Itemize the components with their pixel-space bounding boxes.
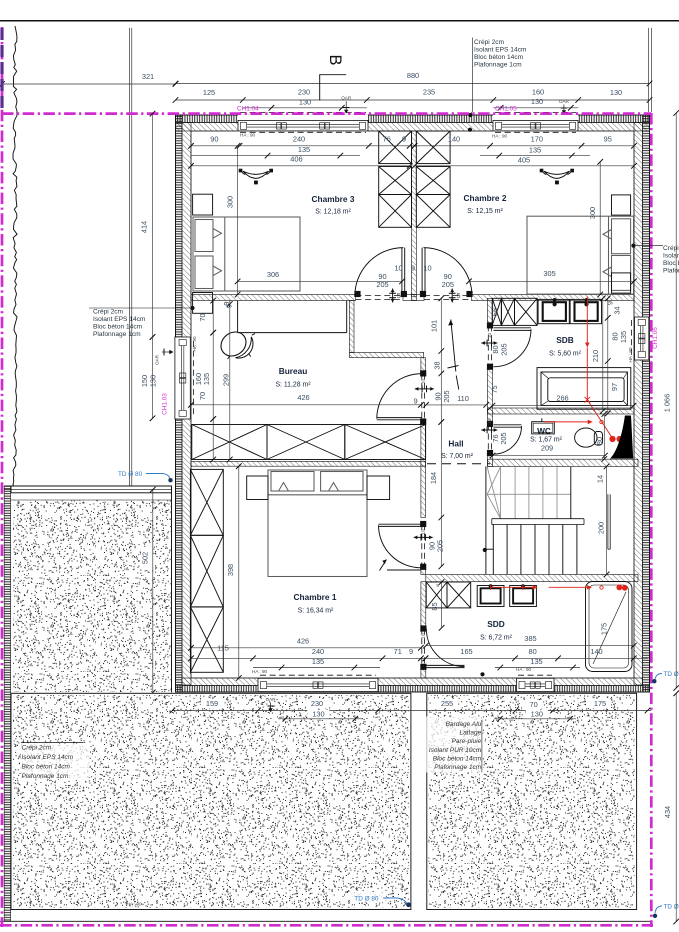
svg-text:434: 434 <box>663 806 672 818</box>
svg-text:Plafonnage 1cm: Plafonnage 1cm <box>93 331 141 338</box>
svg-text:HA : 90: HA : 90 <box>127 902 143 907</box>
svg-text:130: 130 <box>312 710 324 719</box>
svg-text:Lattage: Lattage <box>460 730 482 737</box>
svg-text:Bardage Alu: Bardage Alu <box>446 721 482 728</box>
svg-text:75: 75 <box>490 385 499 393</box>
svg-text:CH1.03: CH1.03 <box>162 393 169 415</box>
svg-text:OAR: OAR <box>155 354 160 365</box>
svg-text:B: B <box>326 54 344 65</box>
svg-text:240: 240 <box>312 647 324 656</box>
svg-text:160: 160 <box>532 88 544 97</box>
svg-text:165: 165 <box>460 647 472 656</box>
svg-text:Pare-pluie: Pare-pluie <box>452 738 482 745</box>
svg-text:385: 385 <box>524 634 536 643</box>
svg-text:56: 56 <box>491 308 500 316</box>
svg-text:426: 426 <box>297 393 309 402</box>
svg-text:S: 6,72 m²: S: 6,72 m² <box>480 635 512 642</box>
svg-text:10: 10 <box>487 333 492 339</box>
svg-text:414: 414 <box>140 221 149 233</box>
svg-text:HA : 90: HA : 90 <box>628 347 633 363</box>
svg-text:135: 135 <box>312 657 324 666</box>
svg-text:97: 97 <box>610 383 619 391</box>
svg-text:80: 80 <box>595 437 604 445</box>
svg-text:9: 9 <box>409 647 413 656</box>
svg-text:135: 135 <box>202 373 211 385</box>
svg-text:184: 184 <box>429 472 438 484</box>
svg-text:TD Ø 80: TD Ø 80 <box>118 471 143 478</box>
svg-text:115: 115 <box>217 643 229 652</box>
svg-text:235: 235 <box>423 88 435 97</box>
svg-text:9: 9 <box>411 264 415 273</box>
svg-text:Bloc béton 14cm: Bloc béton 14cm <box>93 324 143 331</box>
svg-text:Hall: Hall <box>448 439 463 449</box>
svg-text:300: 300 <box>588 207 597 219</box>
svg-text:502: 502 <box>141 552 150 564</box>
svg-text:205: 205 <box>499 432 508 444</box>
svg-text:Isolant EPS 14cm: Isolant EPS 14cm <box>474 47 527 54</box>
svg-text:266: 266 <box>556 394 568 403</box>
svg-text:135: 135 <box>619 331 628 343</box>
svg-text:Crépi 2cm: Crépi 2cm <box>22 745 52 752</box>
svg-text:70: 70 <box>529 700 537 709</box>
svg-text:10: 10 <box>421 633 426 639</box>
svg-text:880: 880 <box>407 71 419 80</box>
svg-text:175: 175 <box>600 623 609 635</box>
svg-text:135: 135 <box>529 146 541 155</box>
svg-text:TD Ø 80: TD Ø 80 <box>354 896 379 903</box>
svg-text:135: 135 <box>530 657 542 666</box>
svg-text:135: 135 <box>298 145 310 154</box>
svg-text:130: 130 <box>299 98 311 107</box>
svg-text:110: 110 <box>457 394 469 403</box>
svg-text:S: 7,00 m²: S: 7,00 m² <box>441 453 473 460</box>
svg-text:Isolant EPS 14cm: Isolant EPS 14cm <box>22 754 74 761</box>
svg-text:Bureau: Bureau <box>279 366 308 376</box>
svg-text:90: 90 <box>210 134 218 143</box>
svg-text:Plafon: Plafon <box>663 268 679 275</box>
svg-text:CH1.05: CH1.05 <box>495 106 517 113</box>
svg-text:34: 34 <box>612 306 621 314</box>
svg-text:426: 426 <box>297 636 309 645</box>
svg-text:Isolant: Isolant <box>663 253 679 260</box>
svg-text:CH1.04: CH1.04 <box>237 106 259 113</box>
svg-text:S: 1,67 m²: S: 1,67 m² <box>530 437 562 444</box>
svg-text:130: 130 <box>148 375 157 387</box>
svg-text:10: 10 <box>394 264 402 273</box>
svg-text:230: 230 <box>311 699 323 708</box>
svg-text:230: 230 <box>298 88 310 97</box>
svg-text:175: 175 <box>594 699 606 708</box>
svg-text:130: 130 <box>531 710 543 719</box>
svg-text:255: 255 <box>441 699 453 708</box>
svg-text:CH1.06: CH1.06 <box>652 327 659 349</box>
svg-text:9: 9 <box>402 134 406 143</box>
svg-text:HA : 90: HA : 90 <box>240 133 256 138</box>
svg-text:125: 125 <box>203 88 215 97</box>
svg-text:209: 209 <box>541 444 553 453</box>
svg-text:140: 140 <box>590 647 602 656</box>
svg-text:305: 305 <box>543 269 555 278</box>
svg-text:306: 306 <box>267 270 279 279</box>
svg-text:200: 200 <box>597 522 606 534</box>
svg-text:OAR: OAR <box>266 697 277 702</box>
svg-text:Chambre 1: Chambre 1 <box>294 592 337 602</box>
svg-text:398: 398 <box>226 564 235 576</box>
svg-text:140: 140 <box>448 134 460 143</box>
svg-text:SDD: SDD <box>487 619 505 629</box>
svg-text:70: 70 <box>198 313 207 321</box>
svg-text:HA : 90: HA : 90 <box>516 667 532 672</box>
svg-text:205: 205 <box>442 280 454 289</box>
svg-text:10: 10 <box>487 418 492 424</box>
svg-text:Bloc béton 14cm: Bloc béton 14cm <box>433 755 482 762</box>
svg-text:1 066: 1 066 <box>663 394 672 413</box>
svg-text:210: 210 <box>591 350 600 362</box>
svg-text:14: 14 <box>596 475 605 483</box>
svg-text:HA : 90: HA : 90 <box>492 134 508 139</box>
svg-text:Isolant EPS 14cm: Isolant EPS 14cm <box>93 316 146 323</box>
svg-text:80: 80 <box>528 647 536 656</box>
svg-text:85: 85 <box>430 602 439 610</box>
svg-text:HA : 90: HA : 90 <box>192 336 197 352</box>
svg-text:Crépi 2cm: Crépi 2cm <box>93 309 124 316</box>
svg-text:5: 5 <box>456 291 460 300</box>
svg-text:Plafonnage 1cm: Plafonnage 1cm <box>22 773 70 780</box>
svg-text:71: 71 <box>394 647 402 656</box>
svg-text:321: 321 <box>142 72 154 81</box>
svg-text:130: 130 <box>531 97 543 106</box>
svg-text:Plafonnage 1cm: Plafonnage 1cm <box>434 764 482 771</box>
svg-text:S: 12,15 m²: S: 12,15 m² <box>467 208 503 215</box>
svg-text:38: 38 <box>432 361 441 369</box>
svg-text:S: 11,28 m²: S: 11,28 m² <box>275 382 311 389</box>
svg-text:9: 9 <box>413 397 417 406</box>
svg-text:10: 10 <box>421 379 426 385</box>
svg-text:Bloc béton 14cm: Bloc béton 14cm <box>474 54 524 61</box>
svg-text:OAR: OAR <box>341 96 352 101</box>
svg-text:9: 9 <box>606 301 615 305</box>
svg-text:76: 76 <box>383 134 391 143</box>
svg-text:Bloc bé: Bloc bé <box>663 260 679 267</box>
svg-text:S: 12,18 m²: S: 12,18 m² <box>315 209 351 216</box>
svg-text:130: 130 <box>610 88 622 97</box>
svg-text:205: 205 <box>499 343 508 355</box>
svg-text:205: 205 <box>442 390 451 402</box>
svg-text:Crépi: Crépi <box>663 245 679 252</box>
svg-text:Plafonnage 1cm: Plafonnage 1cm <box>474 62 522 69</box>
svg-text:S: 16,34 m²: S: 16,34 m² <box>298 608 334 615</box>
svg-text:10: 10 <box>421 529 426 535</box>
svg-text:Bloc béton 14cm: Bloc béton 14cm <box>22 764 71 771</box>
svg-text:Isolant PUR 10cm: Isolant PUR 10cm <box>429 747 482 754</box>
svg-text:WC: WC <box>537 426 551 436</box>
svg-text:299: 299 <box>222 374 231 386</box>
svg-text:HA : 90: HA : 90 <box>252 669 268 674</box>
svg-text:S: 5,60 m²: S: 5,60 m² <box>549 351 581 358</box>
svg-text:300: 300 <box>226 196 235 208</box>
svg-text:9: 9 <box>436 583 439 588</box>
svg-text:SDB: SDB <box>556 335 574 345</box>
svg-text:OAR: OAR <box>559 99 570 104</box>
svg-text:Chambre 2: Chambre 2 <box>464 193 507 203</box>
svg-text:170: 170 <box>531 134 543 143</box>
svg-text:10: 10 <box>423 264 431 273</box>
svg-text:240: 240 <box>293 134 305 143</box>
svg-text:80: 80 <box>610 332 619 340</box>
svg-text:101: 101 <box>430 320 439 332</box>
svg-text:95: 95 <box>604 134 612 143</box>
svg-text:159: 159 <box>206 699 218 708</box>
svg-text:205: 205 <box>436 540 445 552</box>
svg-text:70: 70 <box>198 392 207 400</box>
svg-text:205: 205 <box>376 280 388 289</box>
svg-text:Crépi 2cm: Crépi 2cm <box>474 39 505 46</box>
svg-text:405: 405 <box>518 156 530 165</box>
svg-text:406: 406 <box>290 154 302 163</box>
svg-text:Chambre 3: Chambre 3 <box>312 194 355 204</box>
svg-text:5: 5 <box>397 291 401 300</box>
